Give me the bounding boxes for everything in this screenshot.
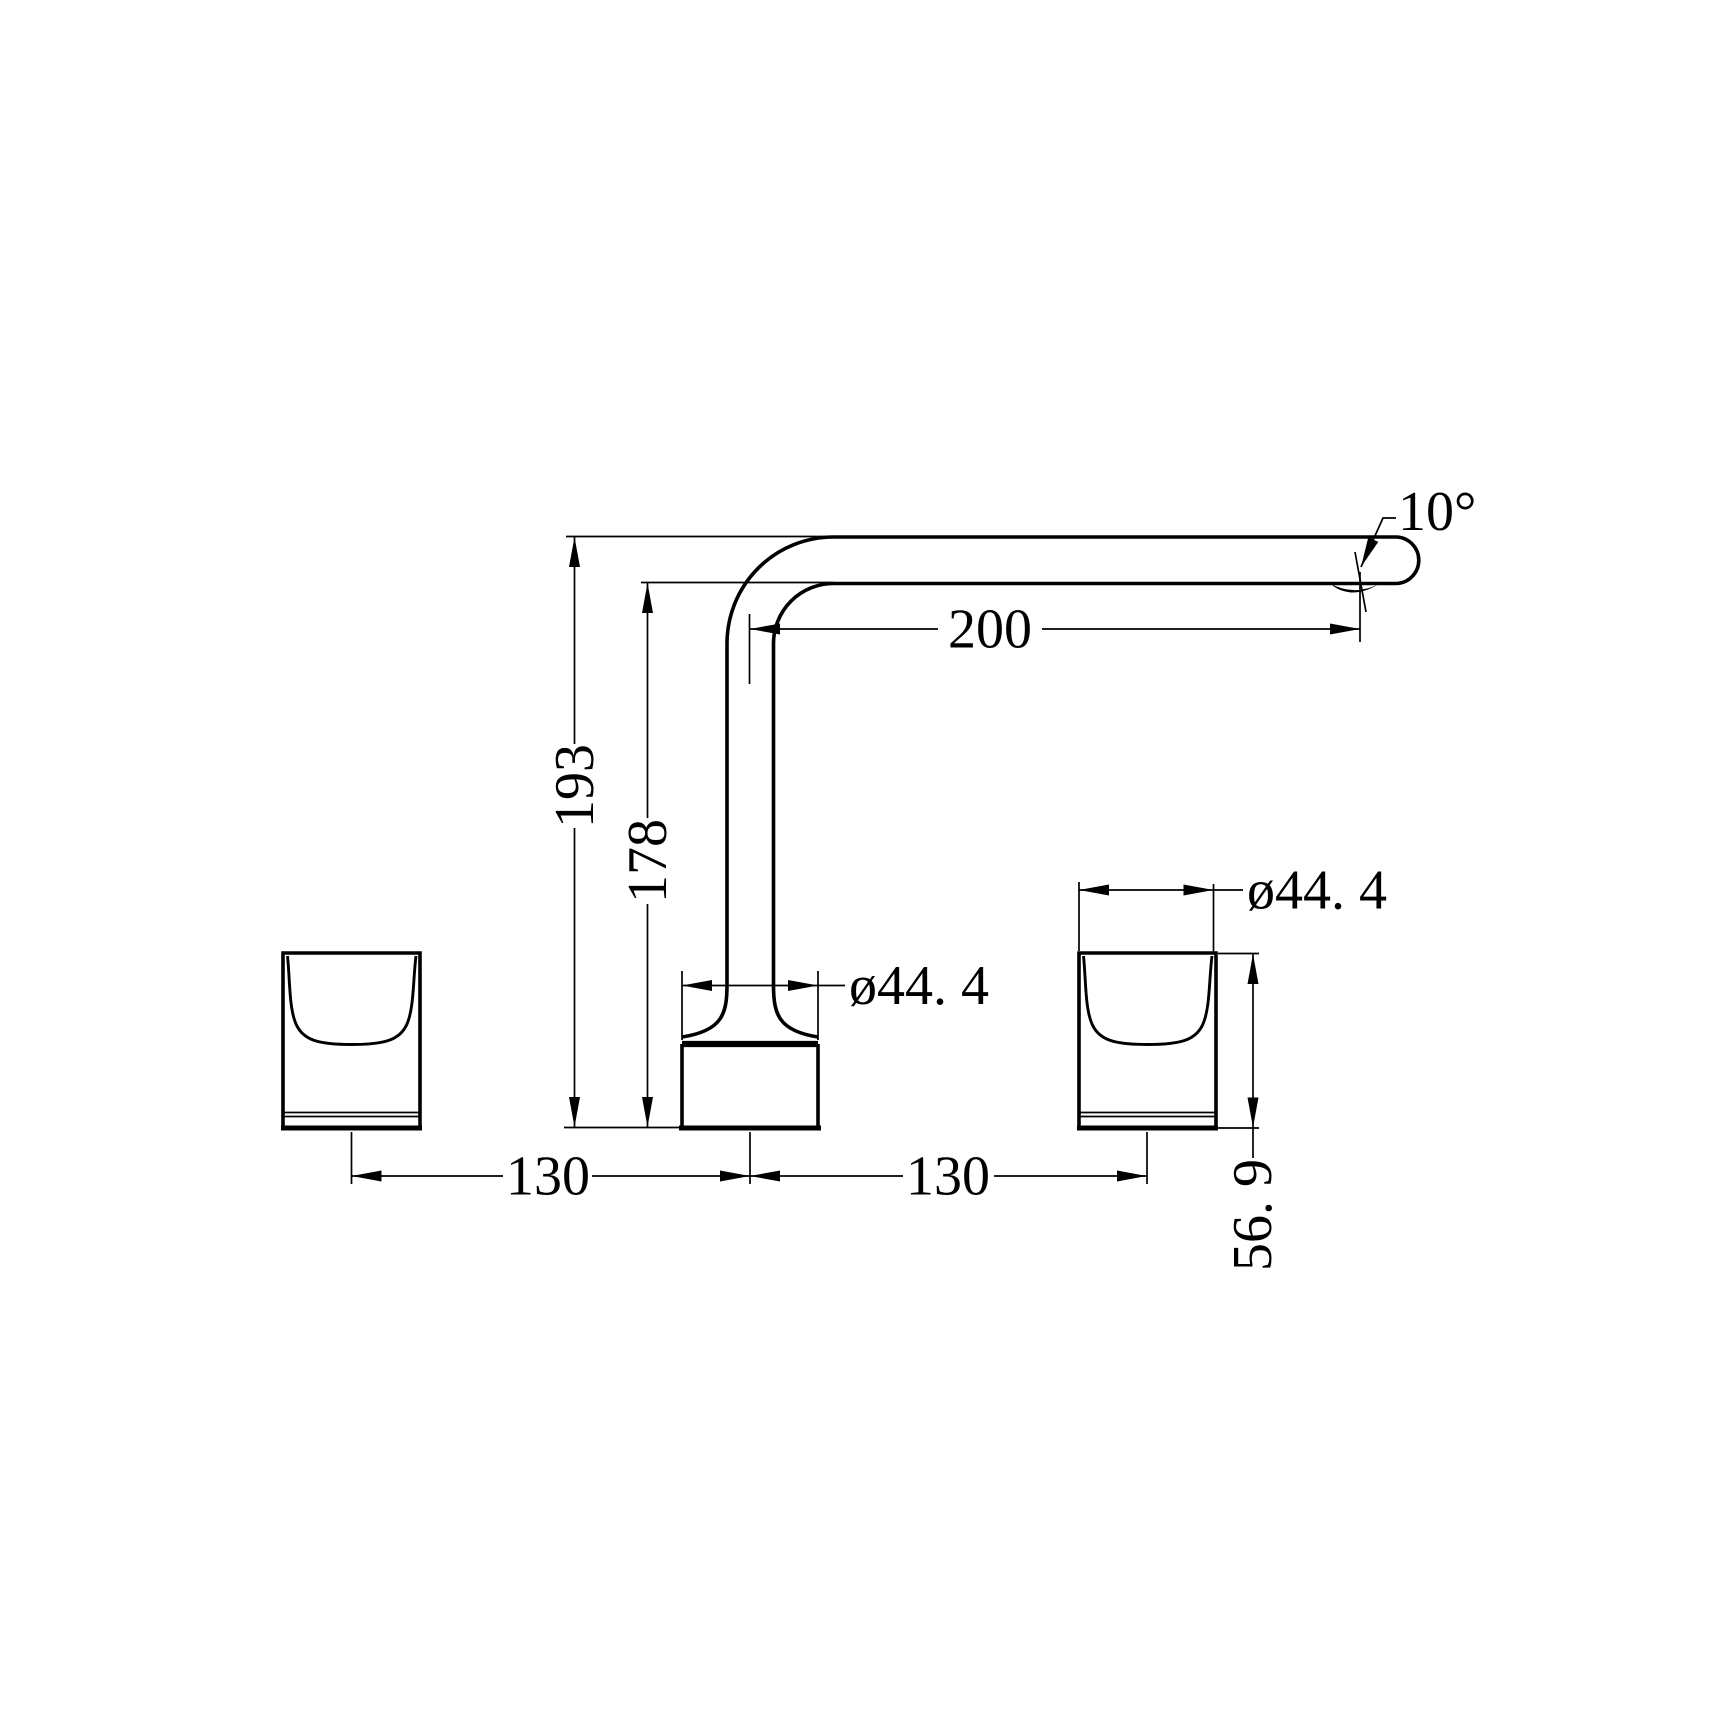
dim-spout-reach: 200 bbox=[750, 572, 1361, 684]
dim-178-arrow-up bbox=[642, 583, 653, 613]
dim-193-arrow-down bbox=[569, 1097, 580, 1127]
angle-leader-arrow bbox=[1361, 537, 1378, 567]
dim-200-arrow-left bbox=[750, 624, 780, 635]
flare-left-curve bbox=[682, 985, 727, 1037]
left-handle-scoop bbox=[288, 956, 417, 1045]
dim-body-dia-label: ø44. 4 bbox=[849, 955, 989, 1017]
dim-130L-arrow-right bbox=[720, 1171, 750, 1182]
dim-130L-arrow-left bbox=[352, 1171, 382, 1182]
dim-130R-label: 130 bbox=[906, 1146, 990, 1208]
left-handle-outline bbox=[283, 953, 420, 1128]
dim-spacing-left: 130 bbox=[352, 1132, 751, 1208]
dim-130R-arrow-right bbox=[1117, 1171, 1147, 1182]
angle-leader-line bbox=[1361, 518, 1396, 567]
dim-handle-dia-label: ø44. 4 bbox=[1247, 860, 1387, 922]
dim-569-arrow-down bbox=[1248, 1098, 1259, 1128]
dim-overall-height: 193 bbox=[544, 537, 833, 1128]
dim-10deg-label: 10° bbox=[1398, 481, 1476, 543]
dim-200-label: 200 bbox=[948, 599, 1032, 661]
faucet-technical-drawing: 193 178 200 10° ø44. 4 ø4 bbox=[0, 0, 1733, 1733]
dim-193-arrow-up bbox=[569, 537, 580, 567]
dim-569-label: 56. 9 bbox=[1222, 1159, 1284, 1271]
dim-569-arrow-up bbox=[1248, 954, 1259, 984]
dim-handle-diameter: ø44. 4 bbox=[1079, 860, 1387, 954]
dim-130R-arrow-left bbox=[750, 1171, 780, 1182]
dim-178-arrow-down bbox=[642, 1097, 653, 1127]
dim-body-dia-arrow-right bbox=[788, 980, 818, 991]
drawing-canvas: 193 178 200 10° ø44. 4 ø4 bbox=[0, 0, 1733, 1733]
spout-body-base bbox=[679, 985, 821, 1128]
right-handle-scoop bbox=[1084, 956, 1213, 1045]
dim-handle-height: 56. 9 bbox=[1218, 954, 1284, 1272]
dim-handle-dia-arrow-left bbox=[1079, 885, 1109, 896]
dim-handle-dia-arrow-right bbox=[1184, 885, 1214, 896]
dim-178-label: 178 bbox=[617, 819, 679, 903]
left-handle bbox=[281, 953, 422, 1128]
dim-200-arrow-right bbox=[1330, 624, 1360, 635]
dim-spacing-right: 130 bbox=[750, 1132, 1147, 1208]
flare-right-curve bbox=[774, 985, 819, 1037]
dim-193-label: 193 bbox=[544, 744, 606, 828]
dim-130L-label: 130 bbox=[506, 1146, 590, 1208]
right-handle bbox=[1077, 953, 1218, 1128]
dim-body-dia-arrow-left bbox=[682, 980, 712, 991]
right-handle-outline bbox=[1079, 953, 1216, 1128]
